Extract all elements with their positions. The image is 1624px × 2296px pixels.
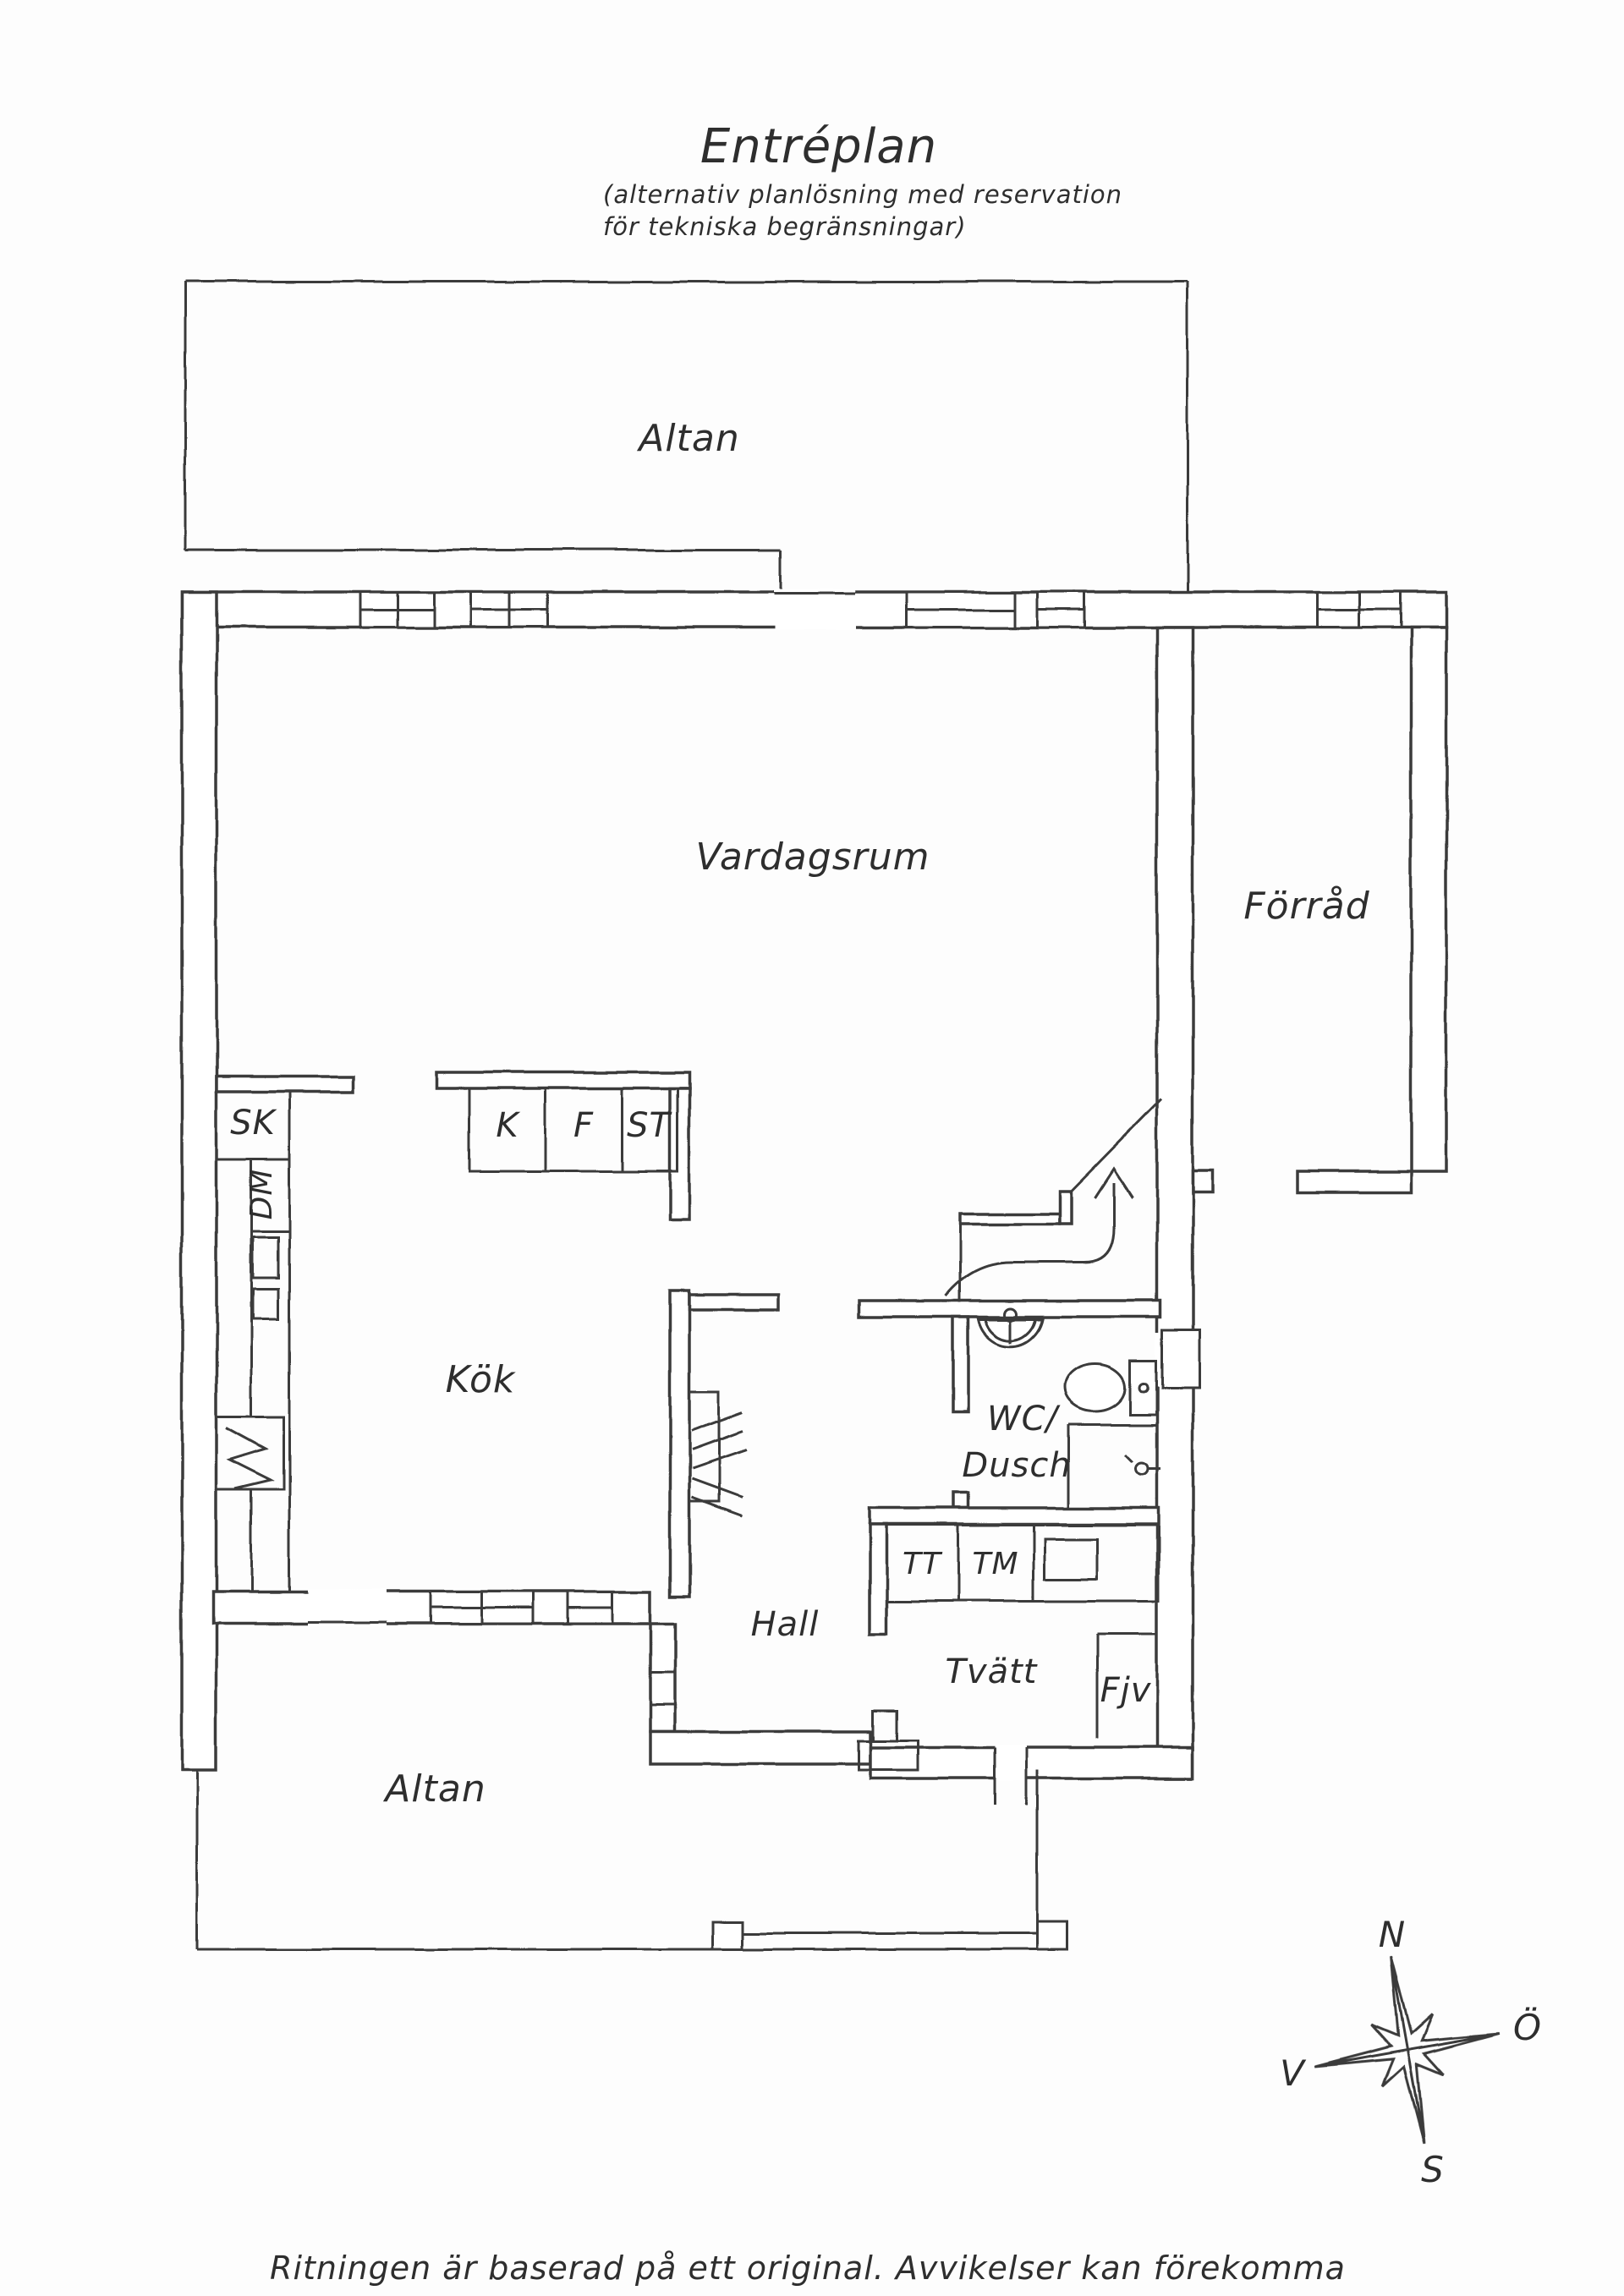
kitchen-fixtures xyxy=(217,1088,678,1592)
floor-plan-page: Entréplan (alternativ planlösning med re… xyxy=(0,0,1624,2296)
stove-zigzag-icon xyxy=(227,1427,271,1488)
stair-up-arrow xyxy=(946,1182,1114,1296)
room-label-altan-bottom: Altan xyxy=(382,1767,486,1811)
laundry-sink xyxy=(1045,1539,1097,1579)
entry-step-upper xyxy=(873,1711,897,1740)
room-label-kok: Kök xyxy=(446,1358,516,1401)
cabinet-label-k: K xyxy=(496,1106,520,1145)
window xyxy=(568,1592,612,1624)
labels: Entréplan (alternativ planlösning med re… xyxy=(230,119,1542,2287)
appliance-label-tm: TM xyxy=(972,1547,1018,1581)
room-label-forrad: Förråd xyxy=(1243,885,1369,928)
compass-label-east: Ö xyxy=(1513,2006,1542,2048)
cabinet-label-f: F xyxy=(573,1106,594,1145)
room-label-hall: Hall xyxy=(751,1605,820,1644)
sink-basin-1 xyxy=(253,1237,278,1278)
room-label-vardagsrum: Vardagsrum xyxy=(696,836,930,879)
cabinet-label-sk: SK xyxy=(230,1104,277,1143)
compass-label-south: S xyxy=(1421,2149,1445,2190)
window xyxy=(907,592,1015,627)
plan-linework xyxy=(182,282,1516,2160)
room-label-dusch: Dusch xyxy=(962,1446,1071,1485)
shower-icon xyxy=(1068,1425,1160,1508)
subtitle-line1: (alternativ planlösning med reservation xyxy=(603,180,1122,209)
deck-bottom-outline xyxy=(197,1770,1067,1949)
cabinet-label-st: ST xyxy=(627,1106,672,1145)
closet-label-fjv: Fjv xyxy=(1100,1671,1152,1710)
footer-disclaimer: Ritningen är baserad på ett original. Av… xyxy=(270,2249,1346,2287)
cabinet-label-dm: DM xyxy=(244,1169,279,1220)
window xyxy=(360,592,435,627)
page-title: Entréplan xyxy=(700,119,937,174)
toilet-icon xyxy=(1064,1361,1156,1415)
compass-label-north: N xyxy=(1379,1914,1406,1955)
room-label-tvatt: Tvätt xyxy=(946,1652,1038,1691)
room-label-wc: WC/ xyxy=(987,1400,1061,1438)
window xyxy=(470,592,547,627)
appliance-label-tt: TT xyxy=(903,1547,943,1581)
deck-post xyxy=(712,1921,742,1949)
compass-rose-icon xyxy=(1298,1941,1516,2160)
window xyxy=(431,1592,533,1624)
subtitle-line2: för tekniska begränsningar) xyxy=(603,212,967,241)
compass-label-west: V xyxy=(1280,2052,1307,2094)
side-door xyxy=(1155,1329,1199,1389)
floor-plan-canvas: Entréplan (alternativ planlösning med re… xyxy=(0,0,1624,2296)
window xyxy=(1038,592,1084,627)
deck-post xyxy=(1037,1921,1067,1949)
window xyxy=(1318,592,1401,627)
room-label-altan-top: Altan xyxy=(636,417,739,460)
sink-basin-2 xyxy=(253,1289,278,1319)
